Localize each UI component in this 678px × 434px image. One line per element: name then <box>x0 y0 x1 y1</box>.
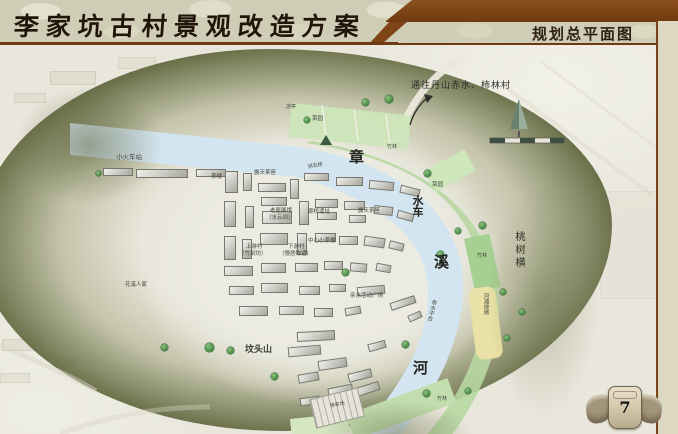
badge-shield: 7 <box>608 386 642 429</box>
map-label: （竹刻坊） <box>239 252 267 258</box>
page-number-badge: 7 <box>586 383 662 431</box>
map-label: 通往丹山赤水、柿林村 <box>411 81 511 90</box>
map-label: 亲水平台 <box>425 299 436 322</box>
map-label: 亲水活动广场 <box>350 294 383 300</box>
map-label: 菜园 <box>432 183 443 189</box>
map-label: 章 <box>349 150 364 165</box>
map-label: 凉亭 <box>286 105 296 110</box>
header-brown-band <box>386 0 678 21</box>
slide-title: 李家坑古村景观改造方案 <box>13 7 368 43</box>
plan-map: 通往丹山赤水、柿林村小火车站凉亭菜园竹林拱石桥章茶楼露天茶座菜园水车露天茶座老屋… <box>0 45 658 434</box>
map-label: 溪 <box>434 255 449 270</box>
map-label: 露天茶座 <box>358 209 380 215</box>
map-label: 竹林 <box>477 254 487 259</box>
map-label: （水云间） <box>266 216 294 222</box>
map-label: 坟头山 <box>245 346 272 355</box>
map-label: 竹林 <box>437 397 447 402</box>
header-bar: 李家坑古村景观改造方案 规划总平面图 <box>0 0 678 45</box>
labels-layer: 通往丹山赤水、柿林村小火车站凉亭菜园竹林拱石桥章茶楼露天茶座菜园水车露天茶座老屋… <box>0 45 658 434</box>
map-label: 老屋展馆 <box>270 209 292 215</box>
map-label: 停车场 <box>330 401 346 409</box>
vertical-rule <box>656 21 658 434</box>
map-label: 拱石桥 <box>308 163 324 171</box>
map-label: 下游村 <box>288 245 305 251</box>
right-margin <box>659 21 678 434</box>
map-label: （慢居物语） <box>279 252 312 258</box>
map-label: 茶楼 <box>211 175 222 181</box>
map-label: 花溪人家 <box>125 283 147 289</box>
map-label: 露天茶座 <box>254 171 276 177</box>
map-label: 菜园 <box>312 117 323 123</box>
map-label: 水车 <box>412 195 423 217</box>
map-label: 河 <box>413 361 428 376</box>
section-title: 规划总平面图 <box>532 23 634 44</box>
map-label: 上游村 <box>246 245 263 251</box>
map-label: 河滩烧烤 <box>482 293 488 315</box>
map-label: 小火车站 <box>116 155 142 162</box>
map-label: 廊桥遗址 <box>308 210 330 216</box>
slide: 李家坑古村景观改造方案 规划总平面图 <box>0 0 678 434</box>
map-label: 竹林 <box>387 145 397 150</box>
map-label: 桃树横 <box>513 231 523 270</box>
header-band-rule <box>386 21 658 22</box>
map-label: 中心小茶楼 <box>308 239 336 245</box>
page-number: 7 <box>619 398 630 417</box>
